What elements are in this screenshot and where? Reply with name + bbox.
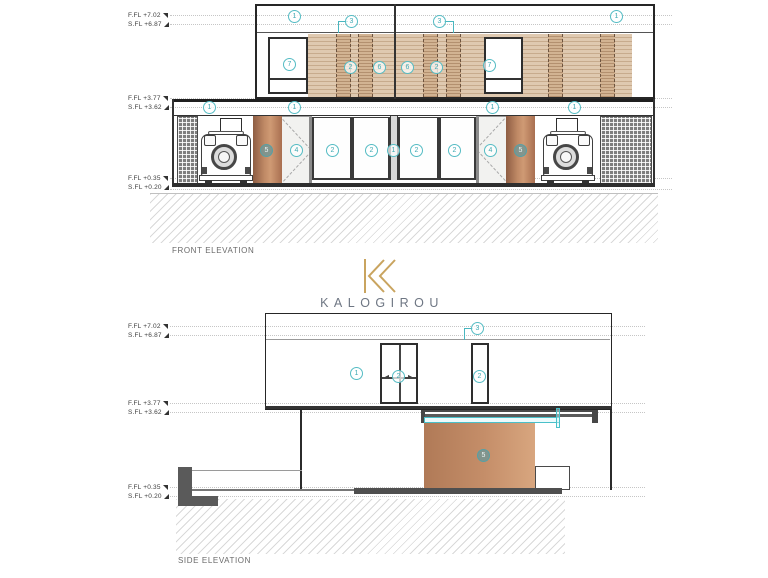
level-flag-icon [163, 176, 168, 181]
ground-slab-line [172, 183, 655, 187]
callout-2: 2 [448, 144, 461, 157]
window-rail [270, 78, 306, 80]
level-flag-icon [164, 494, 169, 499]
terrace-line [192, 470, 302, 471]
logo-k-icon [362, 258, 402, 294]
level-label: F.FL +0.35 [128, 175, 168, 182]
parked-vehicle [200, 131, 252, 184]
brand-name: KALOGIROU [292, 296, 472, 310]
level-label: F.FL +3.77 [128, 400, 168, 407]
wall-edge [300, 410, 302, 490]
level-flag-icon [164, 185, 169, 190]
vehicle-window [578, 135, 590, 146]
front-elevation: F.FL +7.02 S.FL +6.87 F.FL +3.77 S.FL +3… [0, 0, 768, 260]
stone-grid-wall [177, 116, 198, 184]
level-flag-icon [163, 96, 168, 101]
door-frame-edge [476, 117, 479, 183]
canopy [421, 410, 598, 417]
level-flag-icon [164, 22, 169, 27]
level-flag-icon [163, 401, 168, 406]
spare-tire [211, 144, 237, 170]
callout-1: 1 [203, 101, 216, 114]
callout-1: 1 [486, 101, 499, 114]
level-label: S.FL +6.87 [128, 21, 169, 28]
louver-guide-strip [600, 34, 615, 97]
ground-slab-line [354, 488, 562, 494]
callout-2: 2 [326, 144, 339, 157]
vehicle-window [204, 135, 216, 146]
fascia-band [172, 99, 655, 116]
level-flag-icon [164, 410, 169, 415]
spare-tire [553, 144, 579, 170]
side-elevation: F.FL +7.02 S.FL +6.87 F.FL +3.77 S.FL +3… [0, 310, 768, 578]
ceiling-line [257, 32, 653, 33]
ground-hatch [150, 193, 658, 243]
callout-5: 5 [477, 449, 490, 462]
ground-hatch [176, 499, 565, 554]
wall-edge [610, 410, 612, 490]
callout-4: 4 [484, 144, 497, 157]
tail-light [587, 167, 592, 174]
level-label: S.FL +3.62 [128, 409, 169, 416]
callout-1: 1 [387, 144, 400, 157]
level-flag-icon [163, 485, 168, 490]
glass-sliding-doors [312, 117, 390, 180]
tail-light [202, 167, 207, 174]
louver-guide-strip [446, 34, 461, 97]
callout-4: 4 [290, 144, 303, 157]
callout-2: 2 [392, 370, 405, 383]
drawing-canvas: F.FL +7.02 S.FL +6.87 F.FL +3.77 S.FL +3… [0, 0, 768, 578]
callout-7: 7 [483, 59, 496, 72]
callout-1: 1 [288, 101, 301, 114]
canopy-post [592, 410, 598, 423]
planter-step [535, 466, 570, 490]
callout-1: 1 [568, 101, 581, 114]
callout-1: 1 [350, 367, 363, 380]
brand-logo: KALOGIROU [292, 258, 472, 310]
tail-light [245, 167, 250, 174]
level-flag-icon [163, 324, 168, 329]
callout-2: 2 [365, 144, 378, 157]
callout-6: 6 [373, 61, 386, 74]
window-rail [486, 78, 521, 80]
callout-2: 2 [410, 144, 423, 157]
wall-edge [653, 99, 655, 187]
callout-1: 1 [288, 10, 301, 23]
path-line [192, 489, 354, 491]
callout-7: 7 [283, 58, 296, 71]
level-label: F.FL +7.02 [128, 12, 168, 19]
level-flag-icon [163, 13, 168, 18]
louver-guide-strip [548, 34, 563, 97]
parapet-line [266, 339, 610, 340]
party-wall-line [394, 4, 396, 99]
vehicle-window [236, 135, 248, 146]
datum-line [170, 189, 672, 190]
vehicle-window [546, 135, 558, 146]
glass-balustrade [424, 417, 560, 423]
callout-1: 1 [610, 10, 623, 23]
upper-floor-volume [265, 313, 612, 410]
callout-5: 5 [514, 144, 527, 157]
callout-3: 3 [471, 322, 484, 335]
parked-vehicle [542, 131, 594, 184]
side-elevation-title: SIDE ELEVATION [178, 556, 251, 565]
level-label: S.FL +0.20 [128, 184, 169, 191]
level-label: S.FL +3.62 [128, 104, 169, 111]
retaining-wall-foot [178, 496, 218, 506]
level-label: F.FL +3.77 [128, 95, 168, 102]
level-flag-icon [164, 105, 169, 110]
glazing-frame [350, 118, 354, 178]
stone-grid-wall [600, 116, 652, 184]
callout-6: 6 [401, 61, 414, 74]
glazing-frame [437, 118, 441, 178]
callout-2: 2 [473, 370, 486, 383]
tail-light [544, 167, 549, 174]
level-label: F.FL +7.02 [128, 323, 168, 330]
callout-3: 3 [433, 15, 446, 28]
front-elevation-title: FRONT ELEVATION [172, 246, 254, 255]
callout-2: 2 [344, 61, 357, 74]
wall-edge [172, 99, 174, 187]
callout-5: 5 [260, 144, 273, 157]
level-label: S.FL +0.20 [128, 493, 169, 500]
callout-2: 2 [430, 61, 443, 74]
glass-balustrade-edge [556, 408, 560, 428]
datum-line [170, 496, 645, 497]
callout-3: 3 [345, 15, 358, 28]
level-label: F.FL +0.35 [128, 484, 168, 491]
level-label: S.FL +6.87 [128, 332, 169, 339]
level-flag-icon [164, 333, 169, 338]
louver-guide-strip [358, 34, 373, 97]
